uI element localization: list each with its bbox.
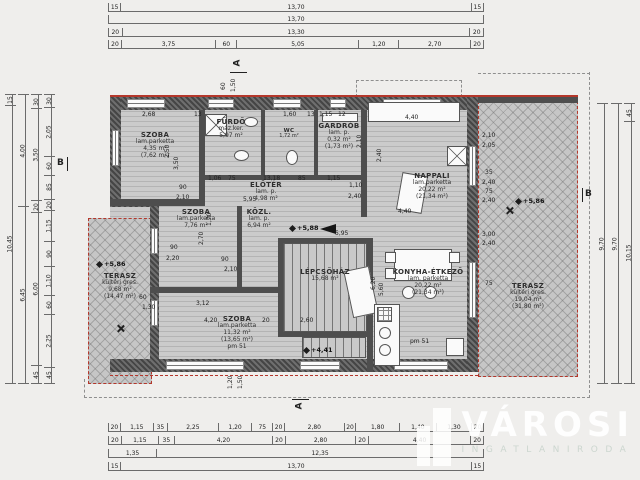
dimension-label: 3,50 [174,157,180,170]
wall-stair-south [278,332,373,337]
dimension-label: 1,70 [207,213,213,226]
dimension-label: 2,80 [314,438,327,444]
dimension-segment: 1,15 [44,211,55,241]
dimension-segment: 2,25 [168,423,219,432]
chair-icon-1 [385,252,396,263]
dimension-label: 90 [46,250,52,258]
dimension-label: 2,05 [482,143,495,149]
dimension-segment: 10,45 [5,106,16,384]
dimension-label: 2,40 [482,180,495,186]
dimension-label: 35 [163,438,171,444]
dimension-label: 3,50 [34,148,40,161]
section-marker-b-left: B [57,158,64,168]
dimension-label: 75 [228,176,236,182]
stair-direction-arrow-icon [320,224,336,234]
window-south-2 [394,361,448,370]
dimension-segment: 20 [273,423,285,432]
section-marker-a-bottom-line [292,399,309,400]
dimension-label: 2,10 [224,267,237,273]
dimension-segment: 20 [109,423,121,432]
level-marker-icon [515,197,522,204]
dimension-segment: 1,15 [121,423,154,432]
dimension-label: 1,20 [372,42,385,48]
window-north-3 [273,99,301,108]
room-label-furdo: FÜRDŐ máz.ker. 5,97 m² [216,118,245,140]
dimension-label: 1,15 [319,112,332,118]
dimension-segment: 45 [44,368,55,384]
floor-plan-canvas: 1513,701513,702013,3020203,75605,051,202… [0,0,640,480]
dimension-label: 85 [298,176,306,182]
dimension-label: 15 [474,5,482,11]
dimension-label: 13 [307,112,315,118]
dimension-label: pm 51 [410,339,429,345]
dimension-segment: 20 [471,40,484,49]
dimension-segment: 20 [470,28,484,37]
dimension-label: 15 [111,5,119,11]
logo-subtitle: INGATLANIRODA [461,445,634,455]
dimension-label: 75 [485,189,493,195]
dimension-label: 15 [7,96,13,104]
dimension-segment: 60 [216,40,237,49]
dimension-label: 9,70 [613,237,619,250]
dimension-label: 13,30 [287,30,304,36]
dimension-segment: 5,05 [237,40,359,49]
property-line-top [478,73,590,74]
dimension-label: 2,40 [348,194,361,200]
dimension-label: 20 [262,318,270,324]
section-marker-a-top-line [230,72,247,73]
logo-name: VÁROSI [461,408,634,442]
dimension-label: 4,20 [204,318,217,324]
wall-stair-west [278,240,283,336]
dimension-label: 4,20 [217,438,230,444]
dimension-label: 20 [111,30,119,36]
dimension-label: 20 [111,425,119,431]
window-north-1 [127,99,165,108]
dimensions-top: 1513,701513,702013,3020203,75605,051,202… [108,3,484,49]
dimension-label: 20 [111,438,119,444]
dimension-segment: 60 [44,296,55,315]
dimension-label: 35 [157,425,165,431]
dimension-segment: 30 [44,95,55,108]
dimension-label: 20 [275,438,283,444]
dimension-label: 90 [179,185,187,191]
wall-furdo-south [199,175,367,180]
level-value: +5,86 [523,197,544,205]
dimension-label: 60 [46,162,52,170]
dimension-label: 2,10 [482,133,495,139]
room-label-terasz-right: TERASZ kültéri gres. 19,04 m² (31,80 m²) [510,282,546,311]
dimension-chain: 9,70 [611,103,622,384]
dimension-segment: 20 [44,200,55,211]
cabinet-icon [447,146,467,166]
dimension-label: 1,80 [371,425,384,431]
room-label-gardrob: GARDRÓB lam. p. 0,32 m² (1,73 m²) [318,122,359,151]
dimension-label: 2,80 [308,425,321,431]
level-marker: +5,88 [290,224,318,232]
dimension-label: 35 [485,170,493,176]
sink-bowl-icon-1 [379,327,391,339]
toilet-wc-icon [286,150,298,165]
wall-gardrob-nappali [361,110,367,217]
wall-szoba1-south [110,199,205,206]
level-value: +4,41 [311,346,332,354]
dimension-label: 2,70 [199,232,205,245]
dimension-segment: 35 [154,423,168,432]
wall-exterior-west-lower [150,199,159,372]
dimension-segment: 15 [5,95,16,106]
section-marker-b-right-line [582,188,583,202]
dimension-chain: 302,056085201,15901,10602,2545 [44,94,55,384]
level-marker: +4,41 [304,346,332,354]
dimension-segment: 1,20 [219,423,253,432]
door-south [300,361,340,370]
level-value: +5,86 [104,260,125,268]
dimension-segment: 60 [44,157,55,176]
dimension-segment: 20 [31,201,42,213]
dimension-label: 45 [46,372,52,380]
level-marker: +5,86 [97,260,125,268]
dimension-label: 20 [111,42,119,48]
dimension-label: 1,06 [208,176,221,182]
dimension-label: 2,60 [300,318,313,324]
dimension-label: 2,20 [166,256,179,262]
dimension-segment: 4,20 [175,436,273,445]
dimension-segment: 1,20 [359,40,399,49]
dimension-segment: 30 [31,95,42,109]
dimension-label: 2,10 [176,195,189,201]
dimension-label: 1,15 [47,219,53,232]
dimension-label: 1,20 [228,376,234,389]
dimension-label: 13,70 [287,464,304,470]
dimension-label: 20 [46,201,52,209]
dimension-label: 60 [139,295,147,301]
dimension-label: 1,15 [130,425,143,431]
dimension-chain: 1510,45 [5,94,16,384]
dimension-segment: 4,00 [18,95,29,207]
room-label-wc: WC 1,72 m² [279,128,299,140]
terrace-door-west-1 [151,228,158,254]
dimension-segment: 13,70 [109,15,484,24]
dimension-label: 3,75 [162,42,175,48]
dimension-label: 45 [33,371,39,379]
dimension-label: 5,05 [291,42,304,48]
dimension-segment: 10,15 [624,122,635,384]
dimension-label: 1,35 [126,451,139,457]
dimension-label: 10,15 [627,244,633,261]
level-marker: +5,86 [516,197,544,205]
property-line-bottom [84,397,590,398]
dimension-label: 3,12 [196,301,209,307]
dimension-label: 6,20 [371,277,377,290]
dimension-segment: 45 [624,104,635,122]
logo-building-icon [417,408,451,466]
dimension-segment: 2,70 [399,40,471,49]
dimension-label: 1,20 [228,425,241,431]
dimension-label: 12 [338,112,346,118]
dimension-segment: 13,70 [121,3,471,12]
dimension-chain: 203,75605,051,202,7020 [108,40,484,49]
dimension-label: 1,10 [47,274,53,287]
dimension-label: 15 [111,464,119,470]
dimension-label: 60 [221,82,227,90]
dimension-segment: 9,70 [611,104,622,384]
dimension-chain: 2013,3020 [108,28,484,37]
dimension-label: 4,40 [398,209,411,215]
sink-bowl-icon-2 [379,344,391,356]
dimension-label: 2,25 [186,425,199,431]
dimension-segment: 15 [109,462,121,471]
dimension-segment: 13,30 [123,28,471,37]
dimension-label: 13,70 [287,5,304,11]
dimension-chain: 9,70 [597,103,608,384]
room-label-nappali: NAPPALI lam.parketta 20,22 m² (21,34 m²) [413,172,451,201]
dimension-label: 20 [358,438,366,444]
dimension-segment: 20 [109,28,123,37]
dimension-label: 6,45 [21,288,27,301]
level-marker-icon [289,224,296,231]
room-label-kozl: KÖZL. lam. p. 6,94 m² [247,208,272,230]
dimension-label: 6,00 [34,282,40,295]
room-label-konyha-etkezo: KONYHA-ÉTKEZŐ lam. parketta 20,22 m² (21… [393,268,464,297]
wall-szoba2-south [150,287,283,293]
dimension-label: 30 [46,97,52,105]
compass-star-icon-left [116,324,125,333]
dimension-label: 90 [170,245,178,251]
dimension-label: 1,10 [349,183,362,189]
wall-stair-north [278,238,372,243]
dimension-segment: 20 [109,40,122,49]
dimension-label: 20 [346,425,354,431]
wall-wc-gardrob [314,110,318,175]
dimension-chain: 303,50206,0045 [31,94,42,384]
dimension-segment: 20 [109,436,122,445]
dimension-label: 2,40 [377,149,383,162]
window-south-1 [166,361,244,370]
dimension-label: 13,70 [287,17,304,23]
dimension-segment: 2,25 [44,315,55,368]
room-label-terasz-left: TERASZ kültéri gres. 9,68 m² (14,47 m²) [102,272,138,301]
dimension-label: 5,60 [379,283,385,296]
roof-line-bottom [110,375,478,376]
dimension-segment: 1,80 [356,423,399,432]
dimension-label: 4,40 [405,115,418,121]
dimension-segment: 1,35 [109,449,157,458]
dimension-segment: 1,10 [44,267,55,296]
dimension-label: 9,70 [600,237,606,250]
washbasin-icon [234,150,249,161]
dimension-label: 60 [46,301,52,309]
dimension-segment: 85 [44,176,55,200]
dimension-label: 1,15 [327,176,340,182]
dimension-segment: 20 [356,436,369,445]
dimension-label: 20 [275,425,283,431]
level-value: +5,88 [297,224,318,232]
terrace-right-railing [478,97,578,103]
dimension-label: 4,00 [21,144,27,157]
dimension-label: 30 [33,98,39,106]
dimension-segment: 3,75 [122,40,216,49]
dimension-label: 12,35 [311,451,328,457]
property-line-right [589,72,590,398]
level-marker-icon [303,346,310,353]
dimension-segment: 90 [44,242,55,267]
property-line-left [84,379,85,398]
dimension-label: 1,50 [231,79,237,92]
dimension-segment: 20 [345,423,357,432]
dimension-label: 2,68 [142,112,155,118]
dimension-label: 1,60 [283,112,296,118]
dimension-segment: 2,05 [44,108,55,157]
dimension-label: 2,40 [482,241,495,247]
dimension-segment: 20 [273,436,286,445]
level-marker-icon [96,260,103,267]
dimension-segment: 2,80 [286,436,356,445]
dimension-segment: 9,70 [597,104,608,384]
wall-szoba2-east [237,206,242,288]
company-logo: VÁROSI INGATLANIRODA [417,408,634,466]
section-marker-a-bottom: A [294,403,304,410]
chair-icon-3 [449,252,460,263]
terrace-door-east-2 [469,262,476,318]
dimensions-left: 1510,454,006,45303,50206,0045302,0560852… [5,94,55,384]
dimension-segment: 1,15 [122,436,159,445]
fridge-icon [446,338,464,356]
dimension-label: 1,15 [133,438,146,444]
toilet-furdo-icon [244,117,258,127]
roof-line-top [110,95,578,97]
dimension-segment: 3,50 [31,109,42,201]
dimension-segment: 15 [472,3,484,12]
dimension-label: 3,00 [482,232,495,238]
dimension-label: 13,18 [263,176,280,182]
window-north-2 [208,99,234,108]
compass-star-icon-right [505,206,514,215]
section-marker-b-right: B [585,189,592,199]
dimension-label: 85 [46,184,52,192]
dimension-label: 2,10 [357,135,363,148]
section-marker-a-top: A [232,60,242,67]
dimension-label: 13 [194,112,202,118]
dimension-segment: 35 [159,436,175,445]
dimension-segment: 15 [109,3,121,12]
dimension-label: 2,50 [165,145,171,158]
dimension-segment: 45 [31,366,42,384]
dimension-label: 20 [473,42,481,48]
dimension-label: 20 [473,30,481,36]
wall-exterior-east [467,97,478,372]
window-west [112,130,119,166]
dimension-label: 5,95 [335,231,348,237]
dimension-segment: 6,45 [18,207,29,384]
dimension-label: 5,95 [243,197,256,203]
dimension-label: 75 [258,425,266,431]
dimension-chain: 4,006,45 [18,94,29,384]
dimension-label: 20 [33,203,39,211]
dimension-label: 10,45 [8,236,14,253]
dimension-label: 2,25 [47,334,53,347]
dimension-label: 60 [222,42,230,48]
stove-icon [377,307,392,322]
dimension-label: 45 [626,109,632,117]
dimension-label: 2,40 [482,198,495,204]
window-north-4 [330,99,346,108]
dimension-segment: 75 [252,423,273,432]
dimension-label: 2,05 [47,125,53,138]
dimension-segment: 6,00 [31,213,42,366]
terrace-door-east-1 [469,146,476,186]
dimension-label: 2,70 [428,42,441,48]
wall-furdo-wc [261,110,265,175]
room-label-szoba-3: SZOBA lam.parketta 11,32 m² (13,65 m²) p… [218,315,256,351]
dimension-chain: 13,70 [108,15,484,24]
dimension-label: 90 [221,257,229,263]
dimensions-right: 9,709,704510,15 [597,103,635,384]
section-marker-b-left-line [67,157,68,171]
dimension-chain: 1513,7015 [108,3,484,12]
dimension-label: 1,30 [142,305,155,311]
dimension-label: 75 [485,281,493,287]
dimension-segment: 2,80 [285,423,345,432]
dimension-label: 1,50 [238,376,244,389]
room-label-lepcsohaz: LÉPCSŐHÁZ 15,68 m² [300,268,350,283]
dimension-chain: 4510,15 [624,103,635,384]
